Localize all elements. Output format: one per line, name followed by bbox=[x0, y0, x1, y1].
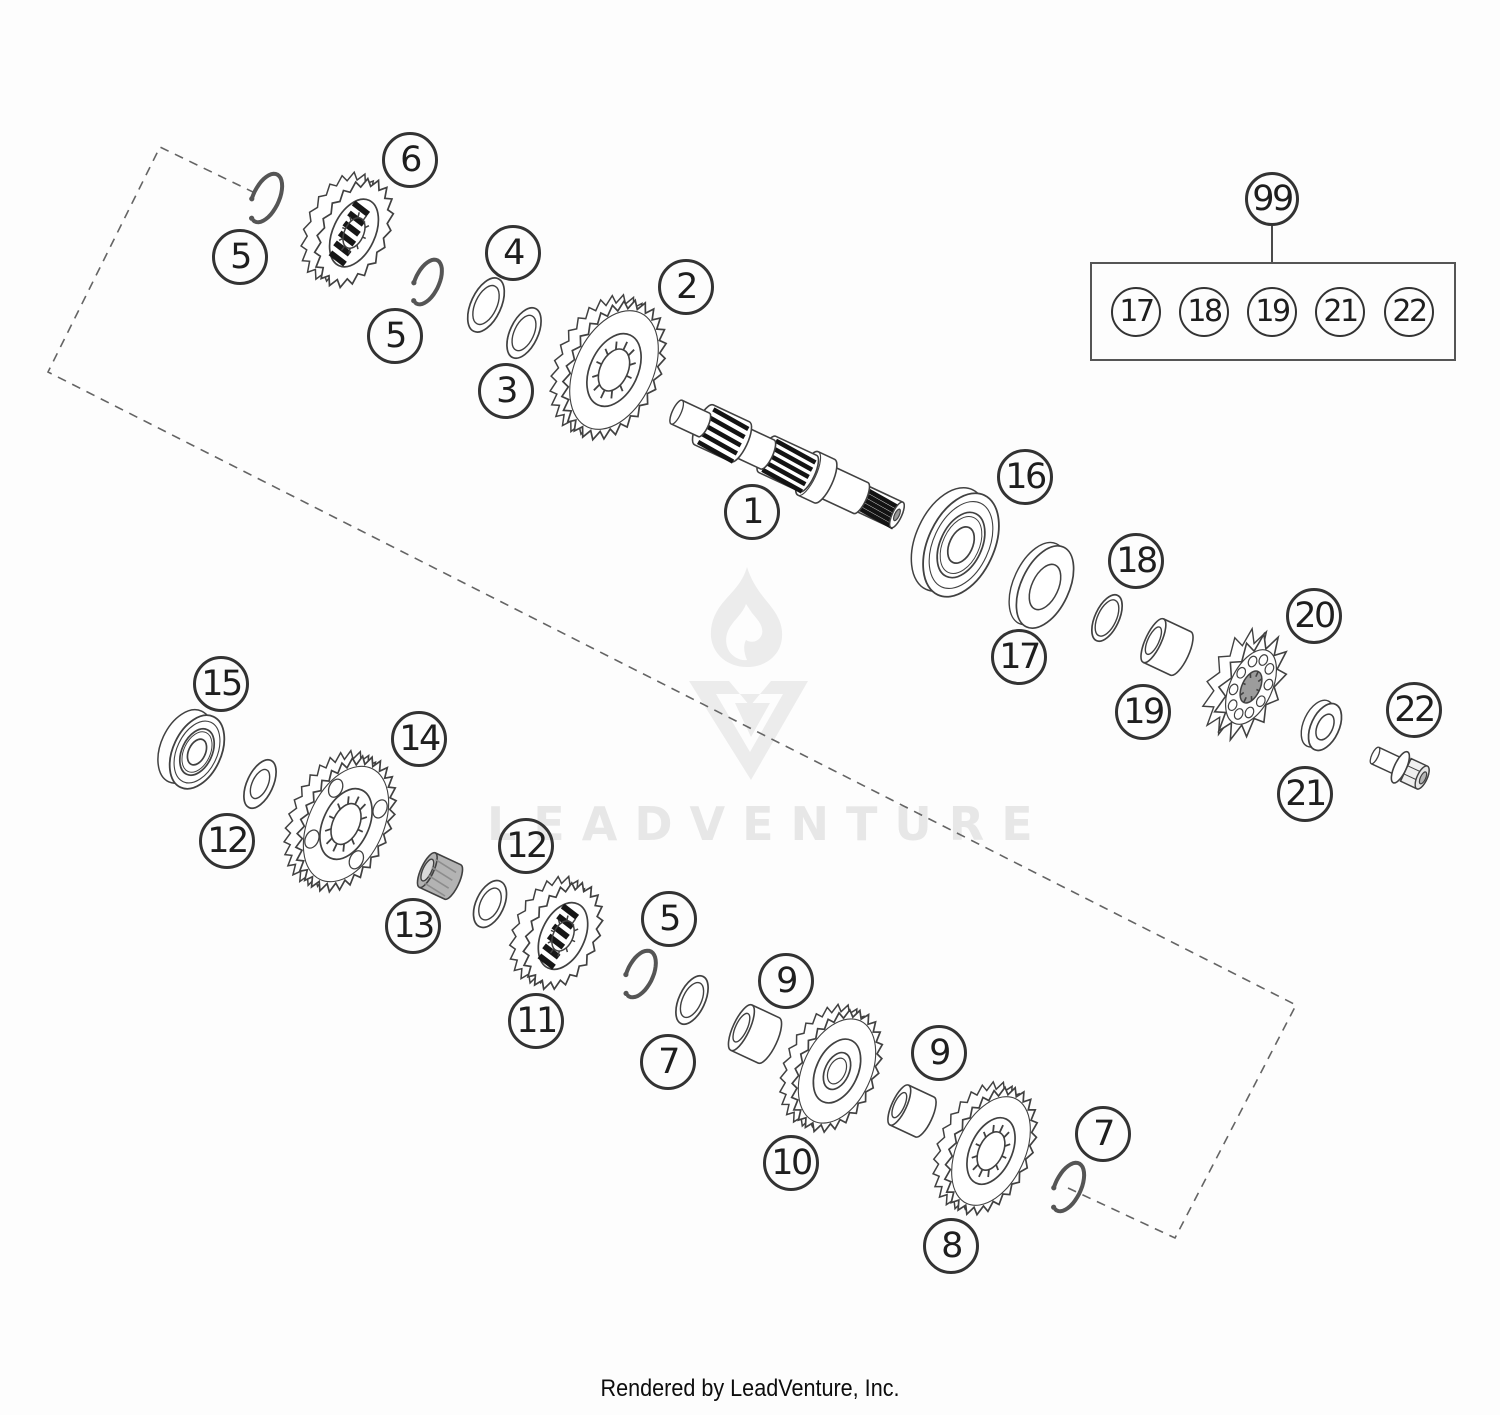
callout-21[interactable]: 21 bbox=[1315, 287, 1365, 337]
callout-99[interactable]: 99 bbox=[1245, 172, 1299, 226]
callout-2[interactable]: 2 bbox=[658, 259, 714, 315]
callout-21[interactable]: 21 bbox=[1277, 766, 1333, 822]
callout-layer: 6554321161817192022211512141312115791098… bbox=[0, 0, 1500, 1415]
callout-12[interactable]: 12 bbox=[199, 813, 255, 869]
callout-22[interactable]: 22 bbox=[1384, 287, 1434, 337]
transmission-parts-diagram: LEADVENTURE 6554321161817192022211512141… bbox=[0, 0, 1500, 1415]
callout-22[interactable]: 22 bbox=[1386, 682, 1442, 738]
callout-20[interactable]: 20 bbox=[1286, 588, 1342, 644]
callout-7[interactable]: 7 bbox=[1075, 1106, 1131, 1162]
callout-3[interactable]: 3 bbox=[478, 363, 534, 419]
callout-13[interactable]: 13 bbox=[385, 898, 441, 954]
callout-9[interactable]: 9 bbox=[758, 953, 814, 1009]
callout-15[interactable]: 15 bbox=[193, 656, 249, 712]
callout-16[interactable]: 16 bbox=[997, 449, 1053, 505]
callout-14[interactable]: 14 bbox=[391, 711, 447, 767]
callout-1[interactable]: 1 bbox=[724, 484, 780, 540]
callout-9[interactable]: 9 bbox=[911, 1025, 967, 1081]
callout-11[interactable]: 11 bbox=[508, 993, 564, 1049]
callout-10[interactable]: 10 bbox=[763, 1135, 819, 1191]
callout-4[interactable]: 4 bbox=[485, 225, 541, 281]
callout-8[interactable]: 8 bbox=[923, 1218, 979, 1274]
rendered-by-caption: Rendered by LeadVenture, Inc. bbox=[75, 1375, 1425, 1403]
callout-6[interactable]: 6 bbox=[382, 132, 438, 188]
callout-12[interactable]: 12 bbox=[498, 818, 554, 874]
callout-5[interactable]: 5 bbox=[367, 308, 423, 364]
callout-19[interactable]: 19 bbox=[1115, 684, 1171, 740]
callout-17[interactable]: 17 bbox=[1111, 287, 1161, 337]
callout-7[interactable]: 7 bbox=[640, 1034, 696, 1090]
callout-5[interactable]: 5 bbox=[212, 229, 268, 285]
callout-19[interactable]: 19 bbox=[1247, 287, 1297, 337]
callout-18[interactable]: 18 bbox=[1108, 533, 1164, 589]
callout-17[interactable]: 17 bbox=[991, 629, 1047, 685]
callout-5[interactable]: 5 bbox=[641, 891, 697, 947]
callout-18[interactable]: 18 bbox=[1179, 287, 1229, 337]
